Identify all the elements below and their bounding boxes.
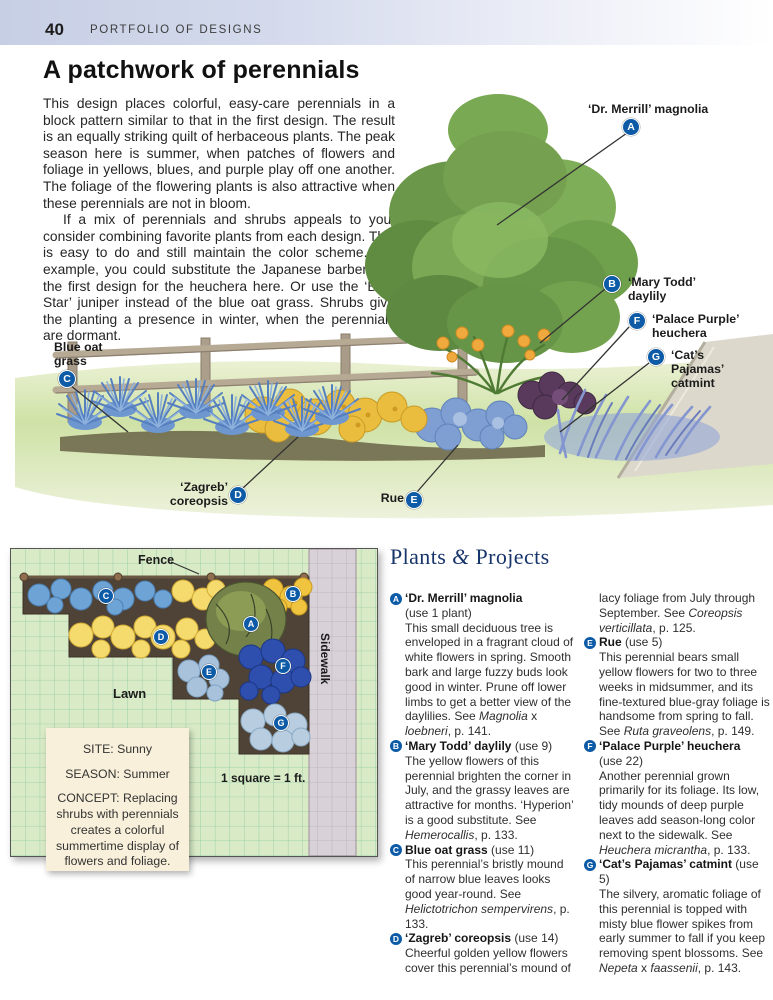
- plant-name-d: ‘Zagreb’ coreopsis: [405, 931, 511, 945]
- article-title: A patchwork of perennials: [43, 56, 360, 85]
- plant-desc-c: This perennial’s bristly mound of narrow…: [405, 857, 576, 931]
- plant-use-c: (use 11): [491, 843, 534, 857]
- plant-entry-d: D ‘Zagreb’ coreopsis (use 14) Cheerful g…: [390, 931, 576, 975]
- plants-column-1: A ‘Dr. Merrill’ magnolia (use 1 plant) T…: [390, 591, 576, 976]
- plant-entry-b: B ‘Mary Todd’ daylily (use 9) The yellow…: [390, 739, 576, 843]
- plant-letter-a: A: [390, 593, 402, 605]
- plant-use-b: (use 9): [515, 739, 552, 753]
- plant-name-b: ‘Mary Todd’ daylily: [405, 739, 511, 753]
- plan-marker-c: C: [98, 588, 114, 604]
- plant-name-a: ‘Dr. Merrill’ magnolia: [405, 591, 522, 605]
- marker-e: E: [405, 491, 423, 509]
- plants-column-2: lacy foliage from July through September…: [584, 591, 772, 976]
- plan-marker-a: A: [243, 616, 259, 632]
- plant-desc-b: The yellow flowers of this perennial bri…: [405, 754, 576, 843]
- plant-name-f: ‘Palace Purple’ heuchera: [599, 739, 740, 753]
- callout-label-heuchera: ‘Palace Purple’ heuchera: [652, 313, 764, 341]
- plan-label-fence: Fence: [138, 553, 174, 567]
- site-line: SITE: Sunny: [55, 742, 180, 758]
- plan-marker-e: E: [201, 664, 217, 680]
- callout-label-magnolia: ‘Dr. Merrill’ magnolia: [588, 103, 738, 117]
- plant-entry-a: A ‘Dr. Merrill’ magnolia (use 1 plant) T…: [390, 591, 576, 739]
- plant-entry-g: G ‘Cat’s Pajamas’ catmint (use 5) The si…: [584, 857, 772, 975]
- plan-scale-label: 1 square = 1 ft.: [221, 771, 305, 785]
- plant-use-e: (use 5): [625, 635, 662, 649]
- concept-line: CONCEPT: Replacing shrubs with perennial…: [55, 791, 180, 870]
- marker-f: F: [628, 312, 646, 330]
- plan-marker-d: D: [153, 629, 169, 645]
- plant-letter-d: D: [390, 933, 402, 945]
- marker-a: A: [622, 118, 640, 136]
- plant-name-c: Blue oat grass: [405, 843, 488, 857]
- plan-marker-b: B: [285, 586, 301, 602]
- callout-label-blue-oat-grass: Blue oat grass: [54, 341, 128, 369]
- site-info-box: SITE: Sunny SEASON: Summer CONCEPT: Repl…: [46, 728, 189, 871]
- page-number: 40: [45, 20, 64, 40]
- callout-label-catmint: ‘Cat’s Pajamas’ catmint: [671, 349, 737, 390]
- marker-c: C: [58, 370, 76, 388]
- marker-g: G: [647, 348, 665, 366]
- plant-use-a: (use 1 plant): [405, 606, 576, 621]
- magnolia-tree: [365, 94, 638, 363]
- callout-label-rue: Rue: [376, 492, 404, 506]
- plant-desc-a: This small deciduous tree is enveloped i…: [405, 621, 576, 739]
- plant-letter-g: G: [584, 859, 596, 871]
- plant-entry-c: C Blue oat grass (use 11) This perennial…: [390, 843, 576, 932]
- plant-use-d: (use 14): [514, 931, 558, 945]
- plant-letter-f: F: [584, 740, 596, 752]
- plant-desc-g: The silvery, aromatic foliage of this pe…: [599, 887, 772, 976]
- plant-use-f: (use 22): [599, 754, 772, 769]
- callout-label-daylily: ‘Mary Todd’ daylily: [628, 276, 712, 304]
- plant-letter-e: E: [584, 637, 596, 649]
- plant-desc-d: Cheerful golden yellow flowers cover thi…: [405, 946, 576, 976]
- book-page: 40 PORTFOLIO OF DESIGNS A patchwork of p…: [0, 0, 773, 1000]
- page-header: [0, 0, 773, 45]
- plant-desc-e: This perennial bears small yellow flower…: [599, 650, 772, 739]
- section-title: PORTFOLIO OF DESIGNS: [90, 24, 262, 36]
- plan-label-lawn: Lawn: [113, 686, 146, 701]
- marker-b: B: [603, 275, 621, 293]
- season-line: SEASON: Summer: [55, 767, 180, 783]
- plant-desc-f: Another perennial grown primarily for it…: [599, 769, 772, 858]
- plan-marker-f: F: [275, 658, 291, 674]
- plant-desc-d-continued: lacy foliage from July through September…: [584, 591, 772, 635]
- plan-label-sidewalk: Sidewalk: [318, 633, 332, 684]
- marker-d: D: [229, 486, 247, 504]
- plant-letter-b: B: [390, 740, 402, 752]
- plants-projects-heading: Plants & Projects: [390, 544, 550, 570]
- plant-name-e: Rue: [599, 635, 622, 649]
- plant-letter-c: C: [390, 844, 402, 856]
- plant-name-g: ‘Cat’s Pajamas’ catmint: [599, 857, 732, 871]
- callout-label-coreopsis: ‘Zagreb’ coreopsis: [148, 481, 228, 509]
- plan-sidewalk-strip: [309, 549, 356, 856]
- plan-marker-g: G: [273, 715, 289, 731]
- plant-entry-f: F ‘Palace Purple’ heuchera (use 22) Anot…: [584, 739, 772, 857]
- plant-entry-e: E Rue (use 5) This perennial bears small…: [584, 635, 772, 739]
